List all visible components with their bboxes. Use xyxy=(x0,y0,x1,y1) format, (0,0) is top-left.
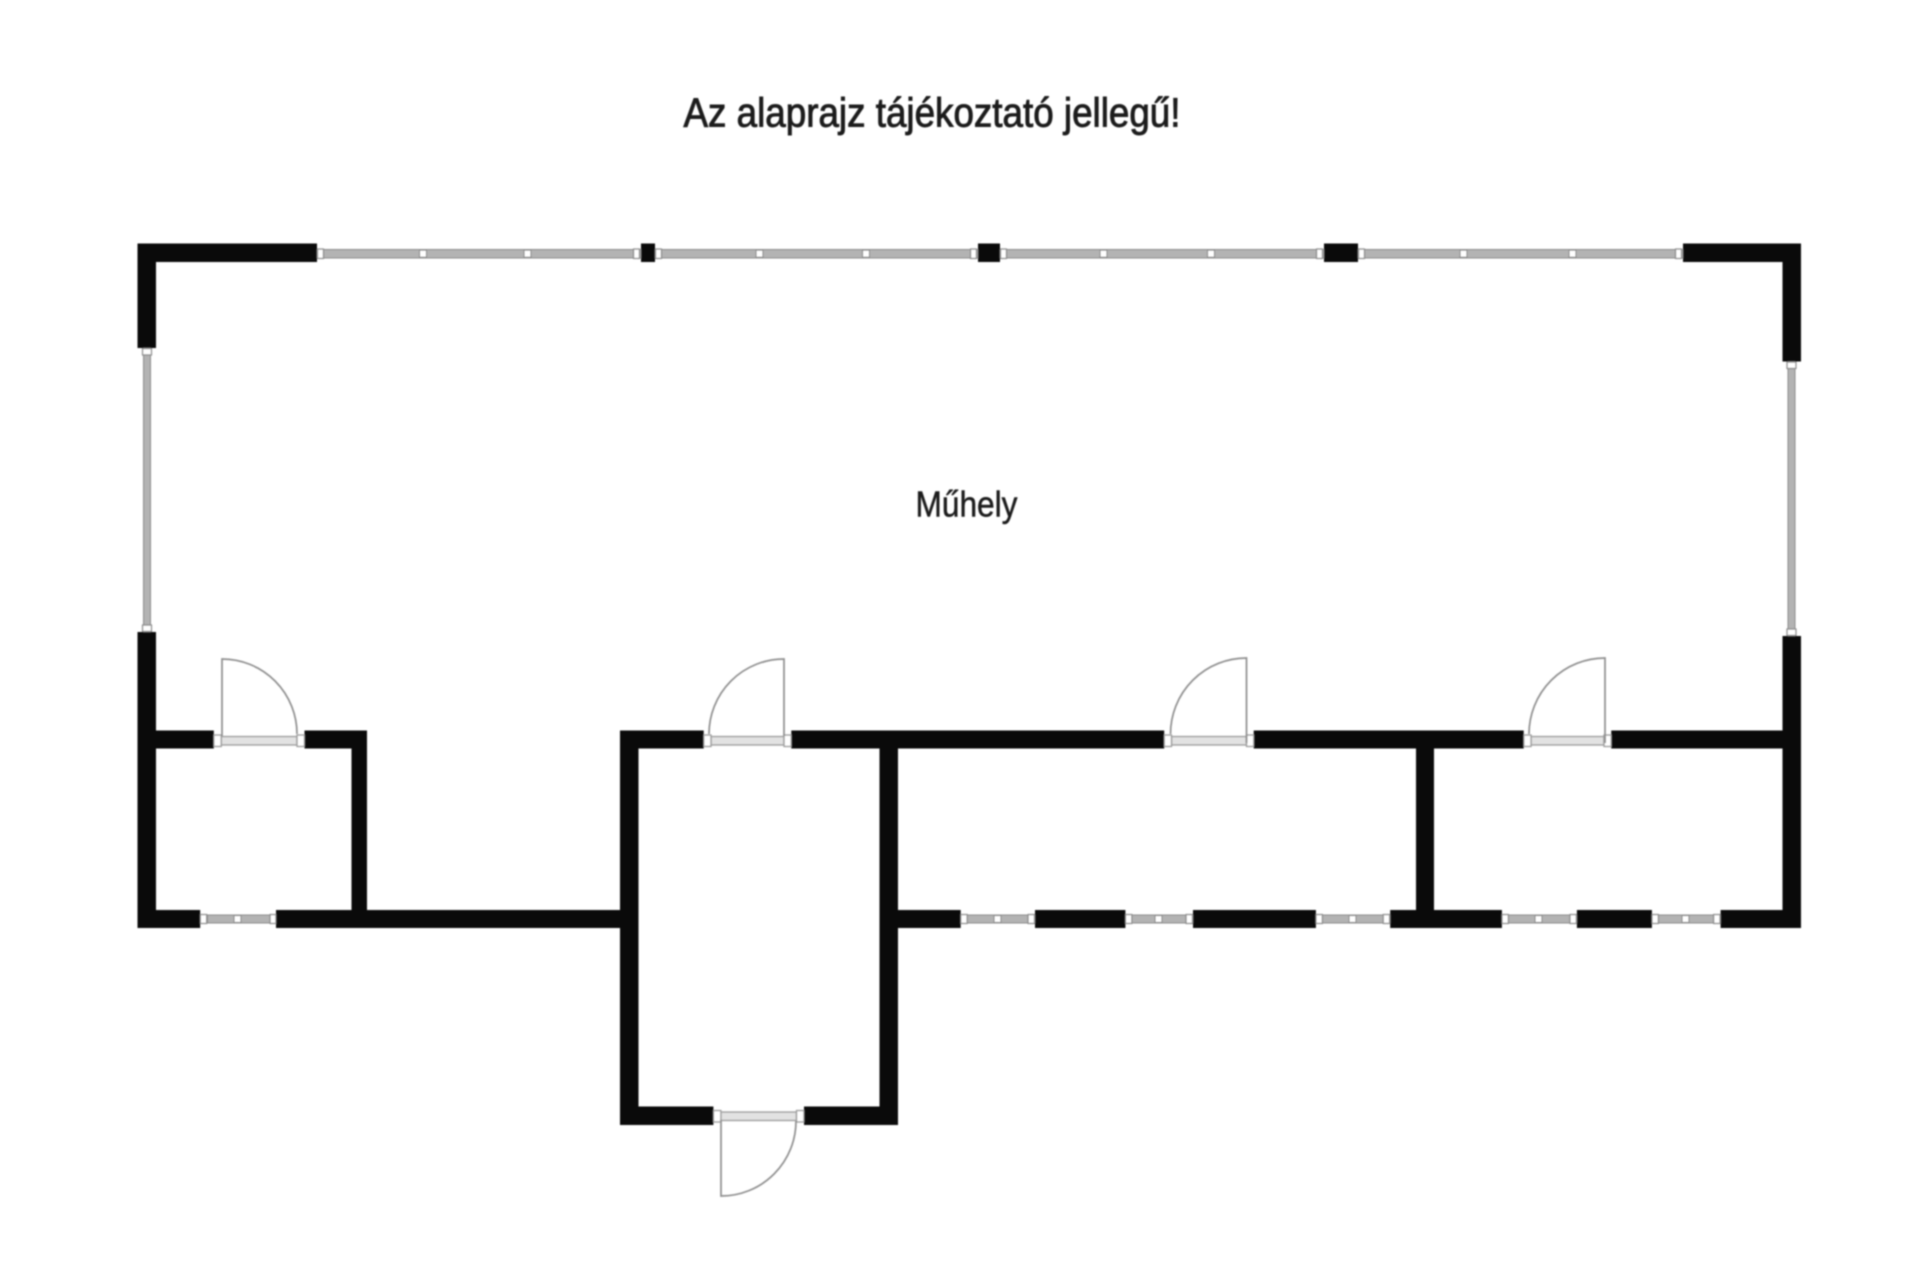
svg-text:Műhely: Műhely xyxy=(916,484,1018,525)
svg-text:Az alaprajz tájékoztató jelleg: Az alaprajz tájékoztató jellegű! xyxy=(684,90,1181,136)
